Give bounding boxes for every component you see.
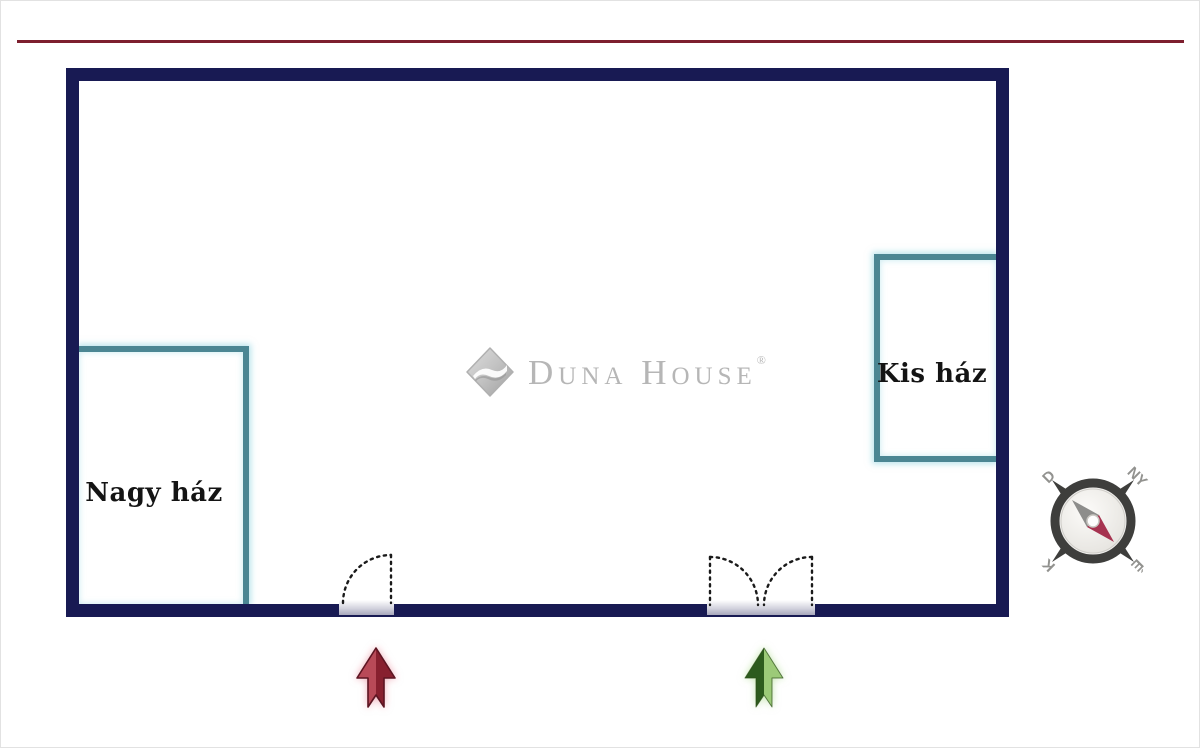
room-label-kis-haz: Kis ház bbox=[862, 359, 1002, 389]
duna-house-wordmark: Duna House® bbox=[528, 354, 766, 390]
duna-house-logo-icon bbox=[465, 346, 515, 398]
plot-boundary-wall bbox=[66, 68, 1009, 617]
top-divider-line bbox=[17, 40, 1184, 43]
green-entrance-arrow-icon bbox=[745, 648, 783, 707]
room-label-nagy-haz: Nagy ház bbox=[79, 478, 229, 508]
compass-rose-icon: D NY K É bbox=[1018, 446, 1168, 596]
duna-house-watermark: Duna House® bbox=[465, 345, 766, 399]
red-entrance-arrow-icon bbox=[357, 648, 395, 707]
floor-plan-image: Nagy ház Kis ház Duna House® bbox=[0, 0, 1200, 748]
registered-trademark-symbol: ® bbox=[757, 353, 766, 367]
